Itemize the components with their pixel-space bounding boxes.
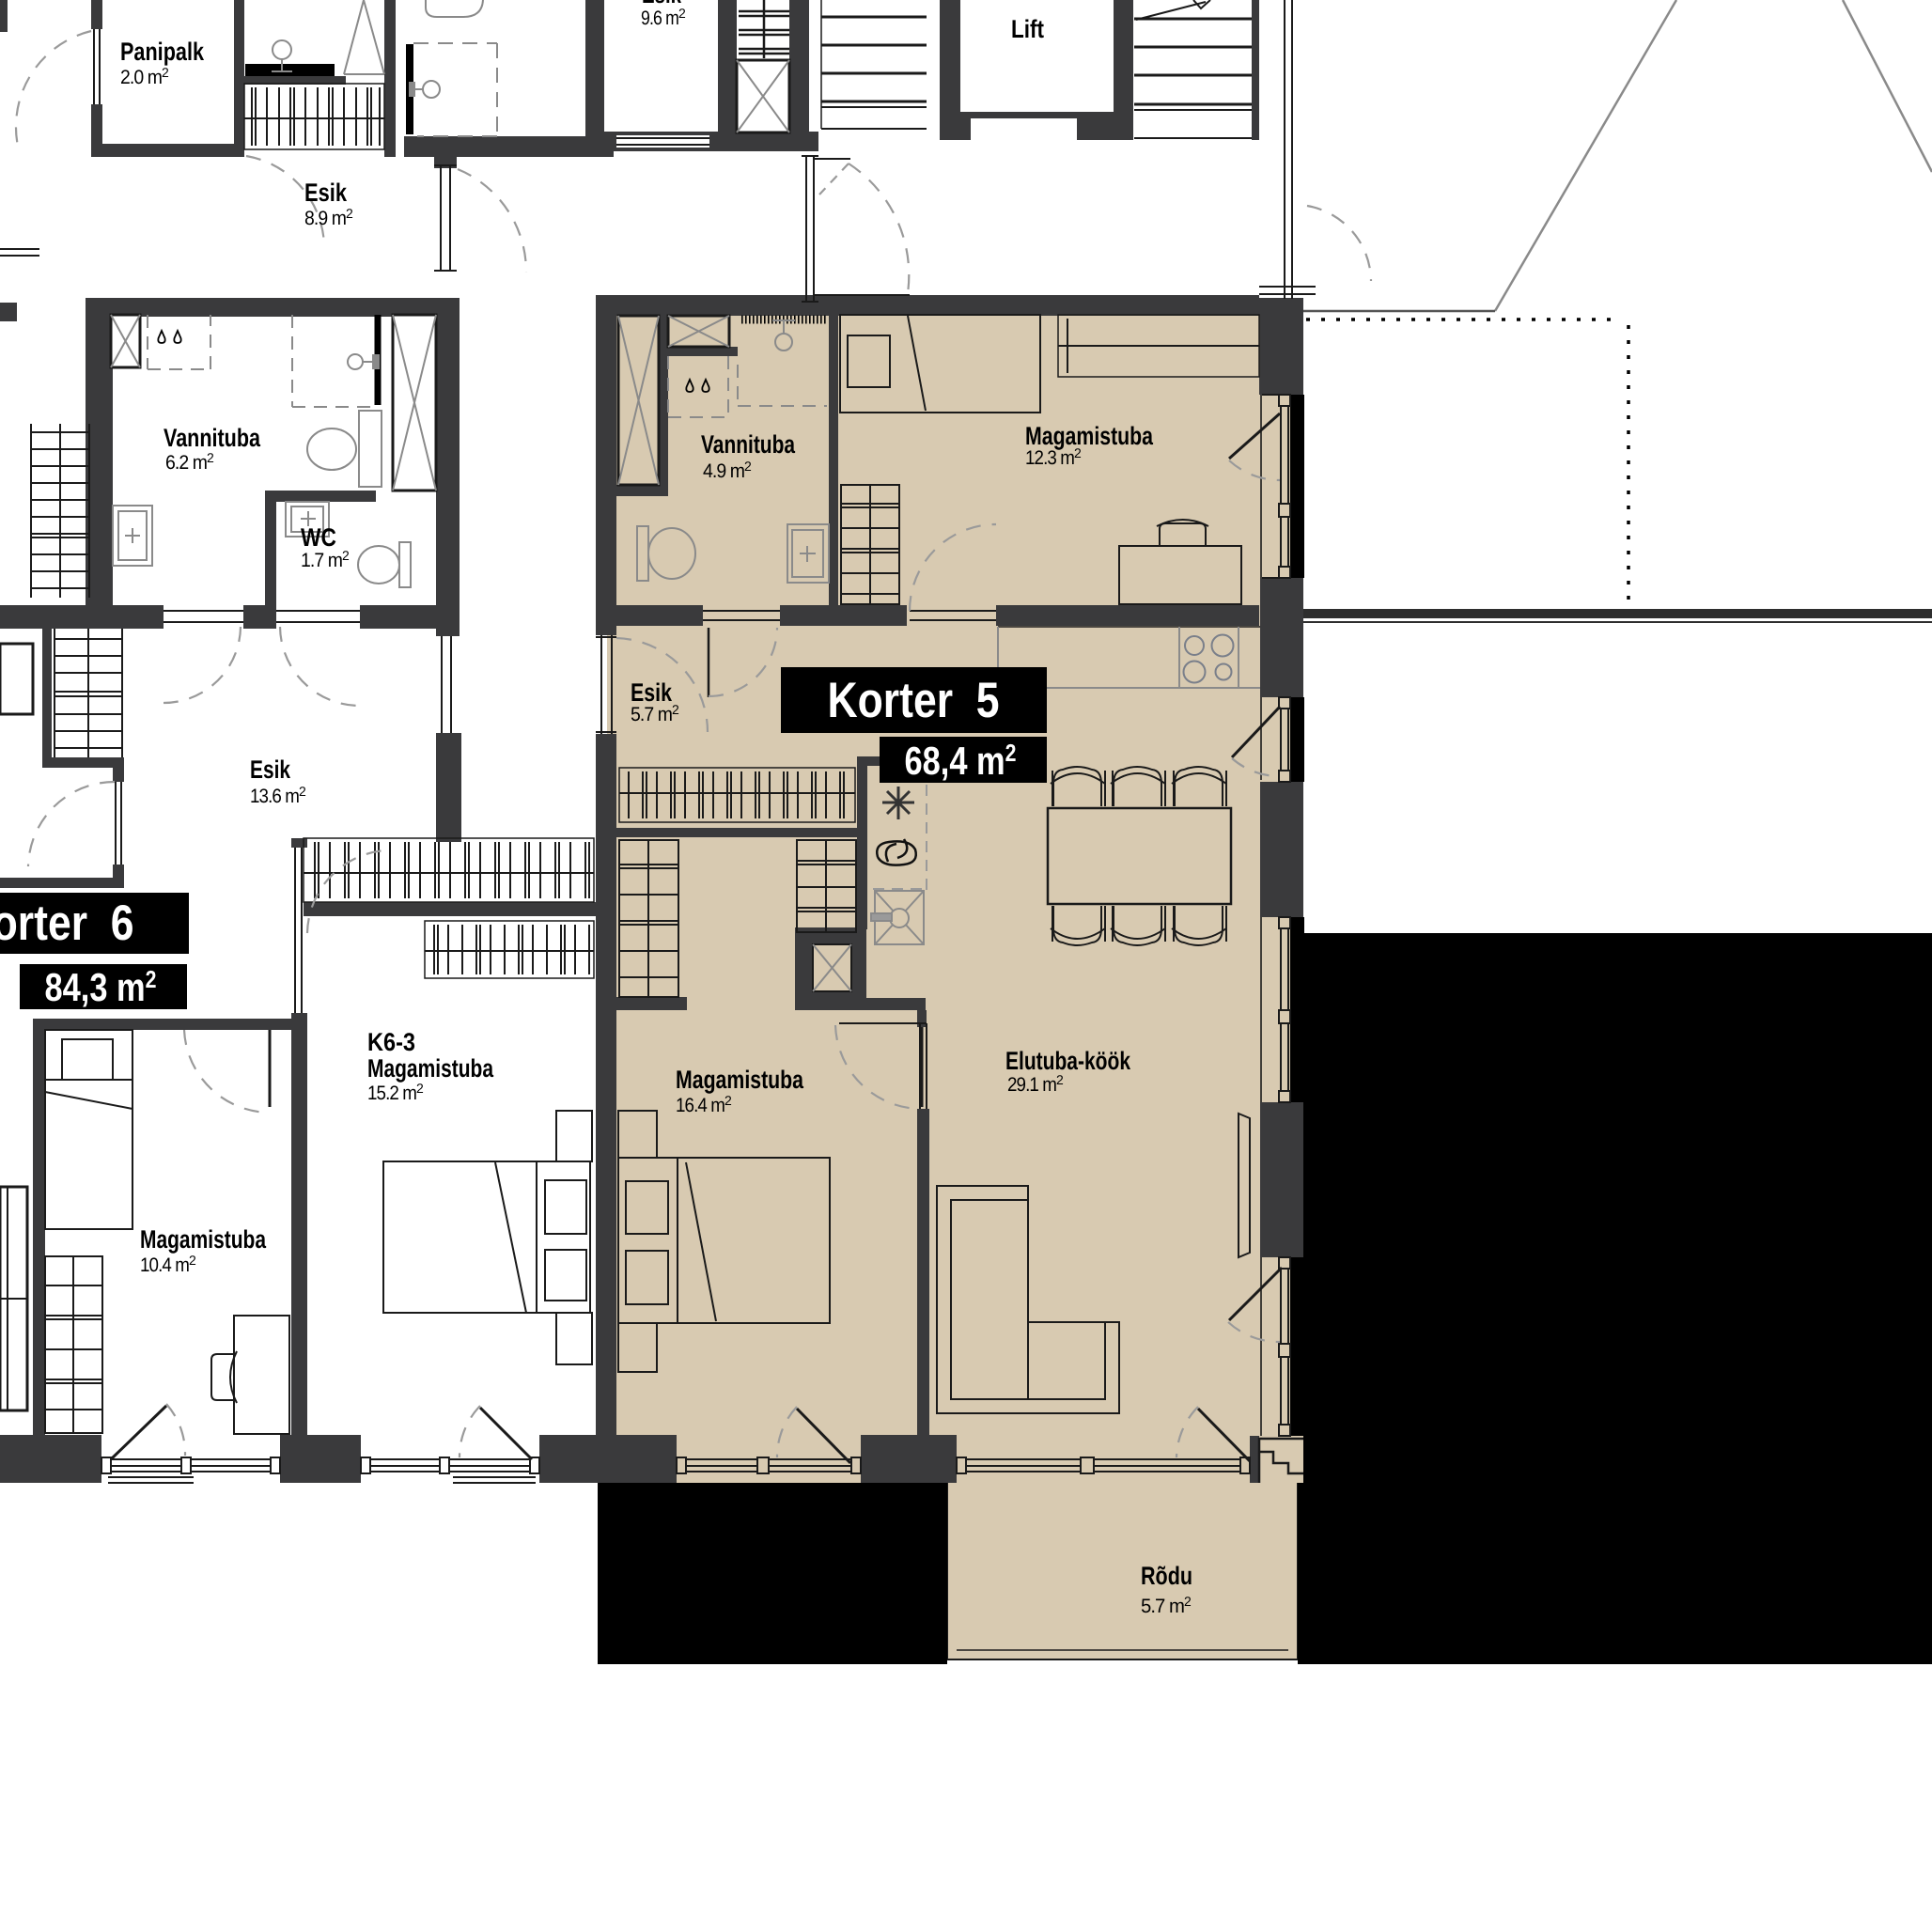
- svg-text:16.4 m2: 16.4 m2: [676, 1093, 732, 1116]
- svg-text:Rõdu: Rõdu: [1141, 1562, 1192, 1590]
- svg-text:Vannituba: Vannituba: [164, 424, 261, 452]
- svg-text:13.6 m2: 13.6 m2: [250, 784, 306, 807]
- svg-text:29.1 m2: 29.1 m2: [1007, 1072, 1064, 1096]
- svg-text:15.2 m2: 15.2 m2: [367, 1081, 424, 1104]
- svg-text:WC: WC: [301, 523, 336, 552]
- svg-text:Vannituba: Vannituba: [701, 430, 796, 459]
- svg-text:Magamistuba: Magamistuba: [140, 1225, 267, 1254]
- svg-text:Esik: Esik: [631, 678, 673, 707]
- svg-text:Esik: Esik: [250, 756, 291, 784]
- svg-text:68,4 m2: 68,4 m2: [904, 739, 1016, 783]
- svg-text:Magamistuba: Magamistuba: [1025, 422, 1154, 450]
- svg-text:Magamistuba: Magamistuba: [676, 1066, 804, 1094]
- svg-text:Korter 6: Korter 6: [0, 896, 134, 951]
- svg-text:Esik: Esik: [304, 179, 348, 207]
- svg-text:Elutuba-köök: Elutuba-köök: [1005, 1047, 1131, 1075]
- svg-text:10.4 m2: 10.4 m2: [140, 1253, 196, 1276]
- svg-text:5.7 m2: 5.7 m2: [1141, 1594, 1192, 1617]
- svg-text:K6-3: K6-3: [367, 1028, 415, 1056]
- svg-text:Panipalk: Panipalk: [120, 38, 205, 66]
- svg-text:84,3 m2: 84,3 m2: [44, 965, 156, 1009]
- svg-text:12.3 m2: 12.3 m2: [1025, 445, 1082, 469]
- svg-text:Lift: Lift: [1011, 15, 1044, 43]
- svg-text:Magamistuba: Magamistuba: [367, 1054, 494, 1083]
- svg-text:Korter 5: Korter 5: [827, 673, 999, 728]
